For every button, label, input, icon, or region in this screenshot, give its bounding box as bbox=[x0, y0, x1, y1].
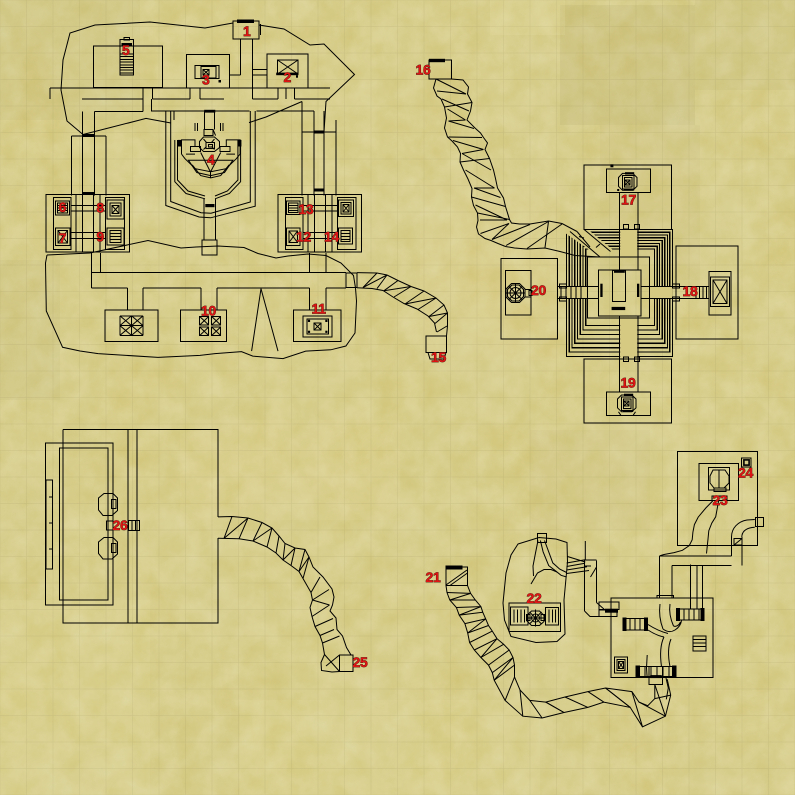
svg-text:8: 8 bbox=[96, 200, 104, 216]
svg-text:6: 6 bbox=[59, 199, 67, 215]
svg-text:24: 24 bbox=[738, 465, 753, 481]
svg-text:22: 22 bbox=[527, 590, 542, 606]
svg-text:25: 25 bbox=[353, 654, 368, 670]
svg-text:15: 15 bbox=[431, 349, 446, 365]
svg-text:9: 9 bbox=[96, 229, 104, 245]
svg-text:12: 12 bbox=[296, 229, 311, 245]
svg-text:21: 21 bbox=[426, 569, 441, 585]
svg-text:18: 18 bbox=[683, 283, 698, 299]
svg-text:17: 17 bbox=[621, 192, 636, 208]
svg-text:23: 23 bbox=[713, 492, 728, 508]
svg-text:13: 13 bbox=[298, 201, 313, 217]
svg-text:14: 14 bbox=[324, 229, 339, 245]
svg-text:1: 1 bbox=[243, 23, 251, 39]
svg-text:10: 10 bbox=[201, 303, 216, 319]
svg-text:2: 2 bbox=[284, 69, 292, 85]
svg-text:5: 5 bbox=[122, 42, 130, 58]
svg-text:19: 19 bbox=[621, 375, 636, 391]
svg-text:11: 11 bbox=[312, 301, 327, 317]
svg-text:7: 7 bbox=[59, 230, 67, 246]
svg-text:20: 20 bbox=[531, 282, 546, 298]
svg-text:4: 4 bbox=[207, 152, 215, 168]
svg-text:16: 16 bbox=[416, 62, 431, 78]
svg-text:26: 26 bbox=[113, 517, 128, 533]
svg-text:3: 3 bbox=[202, 72, 210, 88]
